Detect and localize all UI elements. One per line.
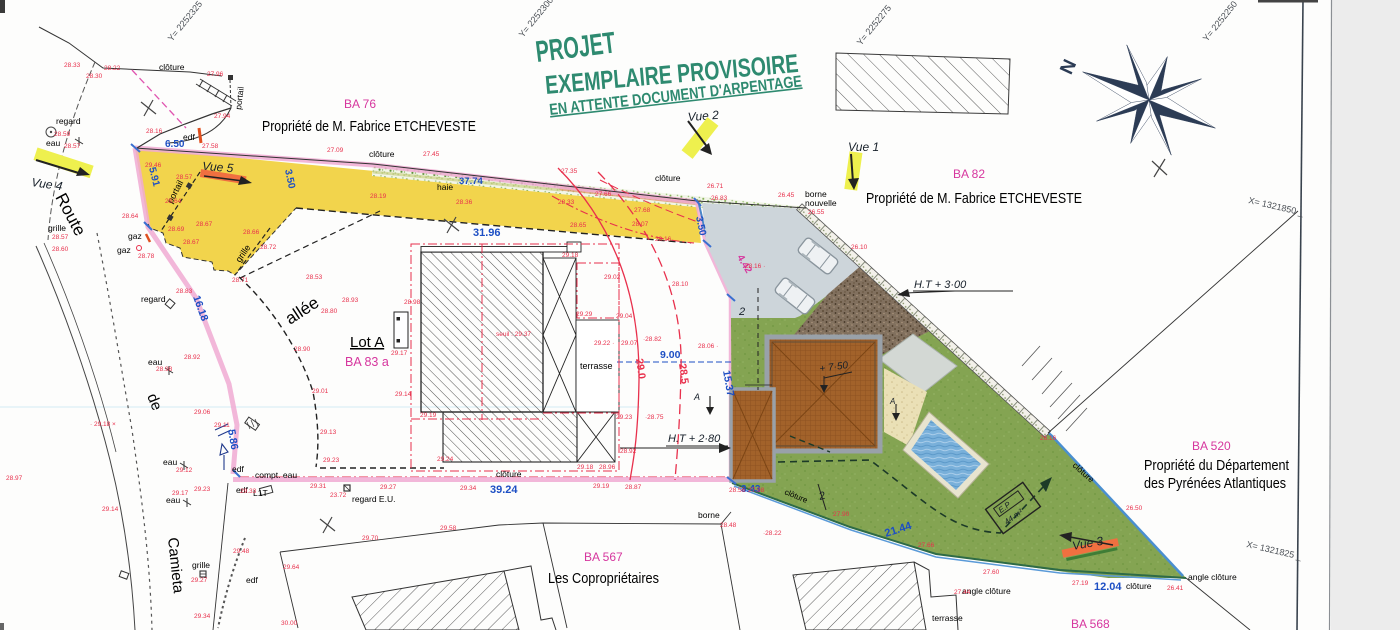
svg-text:27.90: 27.90 <box>833 511 850 518</box>
svg-text:·28.75: ·28.75 <box>645 414 664 421</box>
svg-text:29.17: 29.17 <box>172 490 189 497</box>
svg-text:29.19: 29.19 <box>420 412 437 419</box>
svg-text:terrasse: terrasse <box>932 613 963 623</box>
svg-text:28.10: 28.10 <box>672 281 689 288</box>
svg-text:29.24: 29.24 <box>437 456 454 463</box>
svg-text:29.34: 29.34 <box>460 485 477 492</box>
svg-text:28.19: 28.19 <box>370 193 387 200</box>
svg-text:28.98: 28.98 <box>404 299 421 306</box>
svg-text:seuil : 29.37: seuil : 29.37 <box>496 331 531 338</box>
svg-text:28.67: 28.67 <box>183 239 200 246</box>
svg-text:27.44: 27.44 <box>954 589 971 596</box>
svg-text:28.87: 28.87 <box>625 484 642 491</box>
svg-text:29.18: 29.18 <box>577 464 594 471</box>
svg-text:6.50: 6.50 <box>165 139 185 150</box>
svg-text:compt. eau: compt. eau <box>255 470 297 480</box>
svg-text:28.92: 28.92 <box>184 354 201 361</box>
svg-text:regard: regard <box>56 116 81 126</box>
svg-text:BA 520: BA 520 <box>1192 439 1231 453</box>
svg-text:26.83: 26.83 <box>711 195 728 202</box>
svg-text:28.16: 28.16 <box>146 128 163 135</box>
svg-text:28.56: 28.56 <box>729 487 746 494</box>
svg-text:grille: grille <box>192 560 210 570</box>
svg-text:29.06: 29.06 <box>194 409 211 416</box>
svg-text:26.45: 26.45 <box>778 192 795 199</box>
svg-text:23.72: 23.72 <box>330 492 347 499</box>
svg-text:H.T + 2·80: H.T + 2·80 <box>668 433 721 445</box>
svg-text:borne: borne <box>698 510 720 520</box>
svg-text:29.01: 29.01 <box>312 388 329 395</box>
svg-text:Les Copropriétaires: Les Copropriétaires <box>548 570 659 587</box>
svg-text:29.04: 29.04 <box>616 313 633 320</box>
svg-text:·28.82: ·28.82 <box>643 336 662 343</box>
svg-text:29.33: 29.33 <box>240 488 257 495</box>
svg-text:28.93: 28.93 <box>342 297 359 304</box>
svg-text:27.94: 27.94 <box>214 113 231 120</box>
svg-text:29.11: 29.11 <box>214 422 230 429</box>
svg-text:2: 2 <box>738 306 745 318</box>
svg-text:27.68: 27.68 <box>634 207 651 214</box>
svg-text:regard: regard <box>141 294 166 304</box>
svg-text:27.35: 27.35 <box>561 168 578 175</box>
svg-text:29.31: 29.31 <box>310 483 327 490</box>
svg-text:clôture: clôture <box>1126 581 1152 591</box>
svg-text:29.12: 29.12 <box>176 467 193 474</box>
svg-text:29.29: 29.29 <box>576 311 593 318</box>
svg-text:29.48: 29.48 <box>233 548 250 555</box>
svg-text:9.00: 9.00 <box>660 349 681 361</box>
svg-text:28.36: 28.36 <box>456 199 473 206</box>
svg-text:eau: eau <box>46 138 60 148</box>
svg-text:29.22 ·: 29.22 · <box>594 340 614 347</box>
svg-text:29.64: 29.64 <box>283 564 300 571</box>
svg-text:29.13: 29.13 <box>320 429 337 436</box>
svg-text:Lot A: Lot A <box>350 334 384 351</box>
svg-text:· 29.18 ×: · 29.18 × <box>90 421 116 428</box>
svg-text:grille: grille <box>48 223 66 233</box>
svg-text:Propriété de M. Fabrice ETCHEV: Propriété de M. Fabrice ETCHEVESTE <box>866 191 1082 207</box>
svg-text:28.48: 28.48 <box>720 522 737 529</box>
svg-text:angle clôture: angle clôture <box>1188 572 1237 582</box>
svg-text:28.96: 28.96 <box>599 464 616 471</box>
svg-text:28.64: 28.64 <box>122 213 139 220</box>
svg-text:nouvelle: nouvelle <box>805 198 837 208</box>
svg-text:regard E.U.: regard E.U. <box>352 494 395 504</box>
svg-text:28.57: 28.57 <box>64 143 81 150</box>
svg-text:29.17: 29.17 <box>391 350 408 357</box>
svg-text:29.23: 29.23 <box>616 414 633 421</box>
svg-text:28.72: 28.72 <box>260 244 277 251</box>
svg-text:39.24: 39.24 <box>490 484 518 496</box>
svg-text:29.19: 29.19 <box>593 483 610 490</box>
svg-text:28.97: 28.97 <box>6 475 23 482</box>
svg-text:29.14: 29.14 <box>102 506 119 513</box>
svg-text:Vue 2: Vue 2 <box>687 108 719 124</box>
svg-text:27.09: 27.09 <box>327 147 344 154</box>
svg-text:28.90: 28.90 <box>294 346 311 353</box>
svg-text:29.02: 29.02 <box>604 274 621 281</box>
svg-text:27.19: 27.19 <box>1072 580 1089 587</box>
svg-text:clôture: clôture <box>369 149 395 159</box>
svg-text:A: A <box>889 397 895 406</box>
svg-text:28.98: 28.98 <box>156 366 173 373</box>
svg-text:terrasse: terrasse <box>580 361 613 371</box>
svg-text:29.27: 29.27 <box>380 484 397 491</box>
svg-text:37.74: 37.74 <box>459 176 483 187</box>
svg-text:BA 567: BA 567 <box>584 550 623 564</box>
svg-text:26.55: 26.55 <box>808 209 825 216</box>
svg-text:BA 82: BA 82 <box>953 167 985 181</box>
svg-text:29.14: 29.14 <box>395 391 412 398</box>
svg-text:H.T + 3·00: H.T + 3·00 <box>914 279 967 291</box>
svg-text:27.66: 27.66 <box>918 542 935 549</box>
svg-text:27.60: 27.60 <box>983 569 1000 576</box>
svg-text:29.46: 29.46 <box>145 162 162 169</box>
svg-text:28.57: 28.57 <box>52 234 69 241</box>
svg-text:BA 568: BA 568 <box>1071 617 1110 630</box>
svg-text:Propriété de M. Fabrice ETCHEV: Propriété de M. Fabrice ETCHEVESTE <box>262 119 476 135</box>
svg-text:27.66: 27.66 <box>595 191 612 198</box>
svg-text:27.96: 27.96 <box>207 71 224 78</box>
svg-text:28.59: 28.59 <box>54 131 71 138</box>
svg-text:29.23: 29.23 <box>323 457 340 464</box>
svg-text:A: A <box>693 392 700 402</box>
svg-text:29.58: 29.58 <box>440 525 457 532</box>
svg-text:Propriété du Département: Propriété du Département <box>1144 458 1289 474</box>
svg-text:28.16: 28.16 <box>655 236 672 243</box>
svg-text:29.70: 29.70 <box>362 535 379 542</box>
svg-text:26.71: 26.71 <box>707 183 724 190</box>
svg-text:28.30: 28.30 <box>86 73 103 80</box>
svg-text:28.07: 28.07 <box>632 221 649 228</box>
svg-text:26.50: 26.50 <box>1126 505 1143 512</box>
svg-text:28.65: 28.65 <box>570 222 587 229</box>
svg-text:edf: edf <box>183 132 195 142</box>
svg-text:30.00: 30.00 <box>281 620 298 627</box>
svg-text:clôture: clôture <box>159 62 185 72</box>
svg-text:clôture: clôture <box>496 469 522 479</box>
svg-text:29.23: 29.23 <box>194 486 211 493</box>
svg-text:28.92: 28.92 <box>620 448 637 455</box>
svg-text:28.06 ·: 28.06 · <box>698 343 718 350</box>
svg-text:26.10: 26.10 <box>851 244 868 251</box>
svg-text:27.58: 27.58 <box>202 143 219 150</box>
svg-text:eau: eau <box>163 457 177 467</box>
svg-text:clôture: clôture <box>655 173 681 183</box>
svg-text:·28.22: ·28.22 <box>763 530 782 537</box>
svg-text:29.07: 29.07 <box>621 340 638 347</box>
svg-text:28.71: 28.71 <box>232 277 249 284</box>
svg-text:28.22: 28.22 <box>104 65 121 72</box>
svg-text:29.34: 29.34 <box>194 613 211 620</box>
svg-text:31.96: 31.96 <box>473 227 501 239</box>
svg-text:29.18: 29.18 <box>562 252 579 259</box>
svg-text:gaz: gaz <box>117 245 131 255</box>
svg-text:edf: edf <box>246 575 258 585</box>
svg-text:27.98: 27.98 <box>748 487 765 494</box>
svg-text:28.16 ·: 28.16 · <box>745 263 765 270</box>
svg-text:12.04: 12.04 <box>1094 581 1122 593</box>
svg-text:edf: edf <box>232 464 244 474</box>
svg-text:28.53: 28.53 <box>306 274 323 281</box>
svg-text:28.64: 28.64 <box>165 198 182 205</box>
svg-text:28.80: 28.80 <box>321 308 338 315</box>
svg-text:28.33: 28.33 <box>558 199 575 206</box>
svg-text:26.41: 26.41 <box>1167 585 1184 592</box>
svg-text:28.83: 28.83 <box>176 288 193 295</box>
svg-text:28.57: 28.57 <box>176 174 193 181</box>
svg-text:28.78: 28.78 <box>138 253 155 260</box>
svg-text:28.33: 28.33 <box>64 62 81 69</box>
svg-text:haie: haie <box>437 182 453 192</box>
svg-text:BA 76: BA 76 <box>344 97 376 111</box>
svg-text:29.27: 29.27 <box>191 577 208 584</box>
svg-text:gaz: gaz <box>128 231 142 241</box>
svg-text:28.60: 28.60 <box>52 246 69 253</box>
svg-text:26.16: 26.16 <box>1040 435 1057 442</box>
svg-text:BA 83 a: BA 83 a <box>345 355 389 369</box>
svg-text:des Pyrénées Atlantiques: des Pyrénées Atlantiques <box>1144 476 1286 492</box>
svg-text:28.67: 28.67 <box>196 221 213 228</box>
svg-text:28.69: 28.69 <box>168 226 185 233</box>
svg-text:28.66: 28.66 <box>243 229 260 236</box>
svg-text:27.45: 27.45 <box>423 151 440 158</box>
